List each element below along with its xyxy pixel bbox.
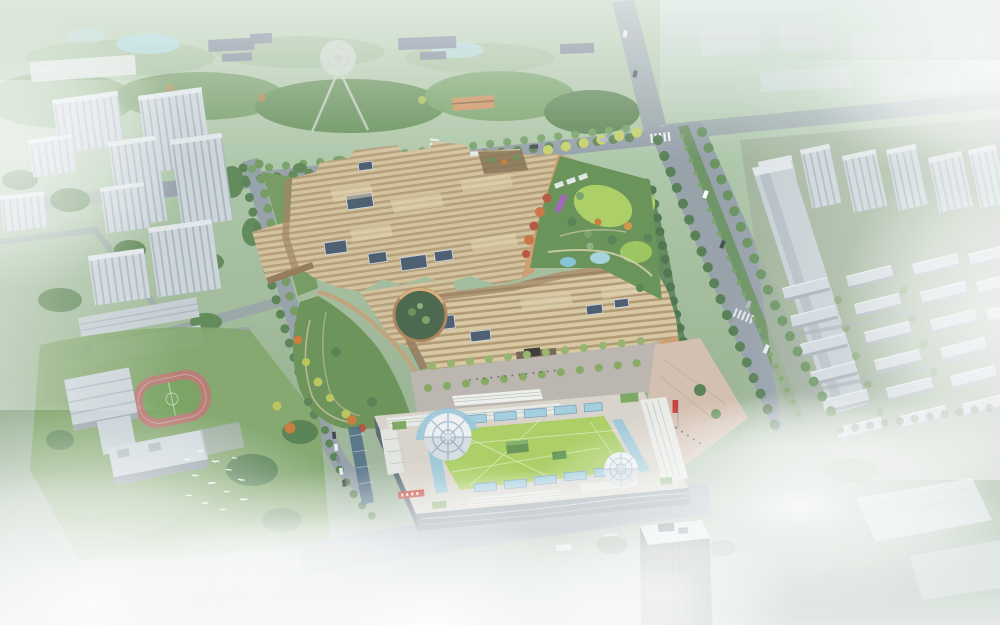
aerial-rendering [0,0,1000,625]
white-wash-overlay [0,0,1000,625]
rendering-canvas [0,0,1000,625]
